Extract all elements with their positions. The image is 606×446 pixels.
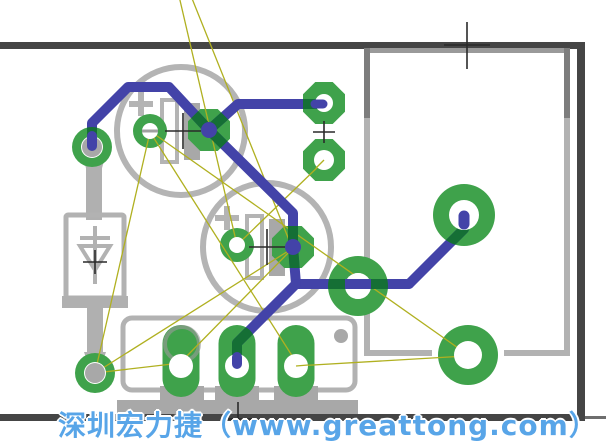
plus-polarity-icon [129,92,153,116]
terminal-block-dot [334,329,348,343]
pads[interactable] [72,82,498,397]
origin-cross-relay[interactable] [444,22,490,69]
board-outline-top[interactable] [0,42,585,49]
board-outline-right[interactable] [577,42,585,421]
dimension-line-stub[interactable] [585,416,606,419]
pcb-board-drawing [0,0,606,446]
board-outline-bottom[interactable] [0,414,585,421]
pcb-layout-editor-canvas: 深圳宏力捷（www.greattong.com） [0,0,606,446]
